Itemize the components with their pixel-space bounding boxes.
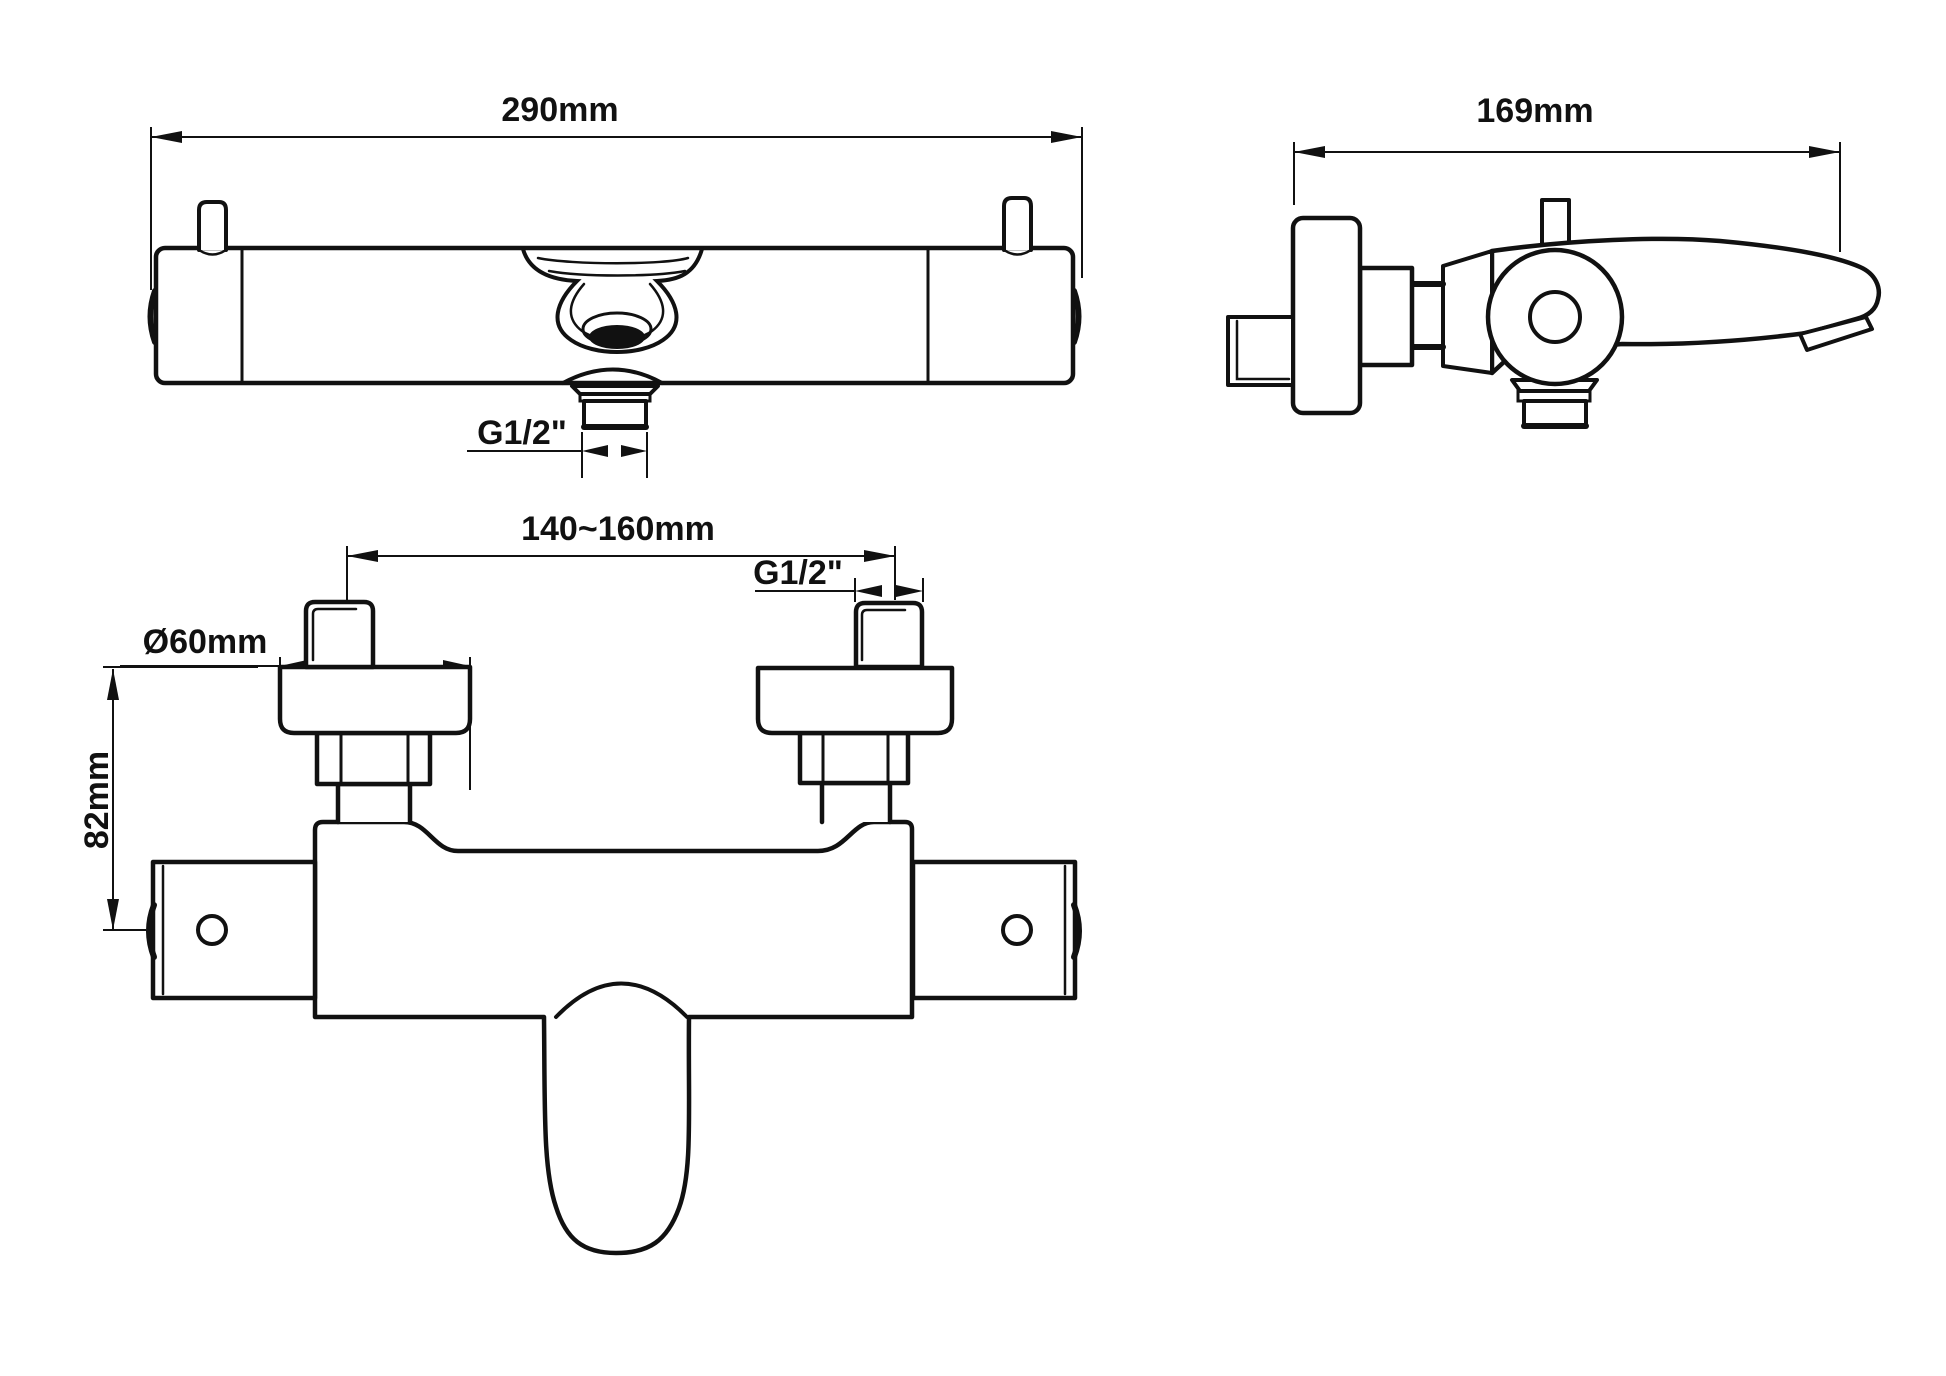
- screw-icon: [1003, 916, 1031, 944]
- dimension-140-160-label: 140~160mm: [521, 510, 715, 548]
- top-view: 290mm: [151, 91, 1083, 478]
- right-wall-union: [758, 603, 952, 822]
- arrowhead-left-icon: [582, 445, 608, 457]
- dimension-82mm-label: 82mm: [78, 751, 116, 849]
- arrowhead-left-icon: [151, 131, 182, 143]
- dimension-inlet-g12: G1/2": [753, 554, 923, 602]
- handle-cap: [913, 862, 1075, 998]
- bottom-outlet: [1512, 380, 1597, 426]
- union-nut: [800, 733, 908, 783]
- left-wall-union: [280, 602, 470, 822]
- arrowhead-right-icon: [1809, 146, 1840, 158]
- union-nut: [317, 733, 430, 784]
- arrowhead-left-icon: [347, 550, 378, 562]
- mixer-body: [315, 822, 912, 1253]
- side-view: 169mm: [1228, 92, 1879, 426]
- dimension-290mm-label: 290mm: [501, 91, 618, 129]
- dial-hub: [1530, 292, 1580, 342]
- thread-knob: [306, 602, 373, 667]
- mixer-bar-body: [156, 248, 1073, 383]
- knob-outline: [1004, 198, 1031, 250]
- arrowhead-right-icon: [621, 445, 647, 457]
- right-handle-knob: [1004, 198, 1031, 255]
- front-view: 140~160mm Ø60mm 82mm G1/2": [78, 510, 1079, 1253]
- spout-hole: [589, 325, 645, 349]
- arrowhead-right-icon: [1051, 131, 1082, 143]
- outlet-thread: [584, 401, 646, 426]
- arrowhead-down-icon: [107, 899, 119, 930]
- dimension-169mm-label: 169mm: [1476, 92, 1593, 130]
- arrowhead-left-icon: [1294, 146, 1325, 158]
- drawing-canvas: 290mm: [0, 0, 1946, 1376]
- dimension-g12-label: G1/2": [753, 554, 843, 592]
- dimension-60mm-label: Ø60mm: [143, 623, 268, 661]
- right-handle: [913, 862, 1079, 998]
- arrowhead-right-icon: [896, 585, 923, 597]
- technical-drawing: 290mm: [0, 0, 1946, 1376]
- outlet-thread: [1524, 401, 1586, 426]
- dimension-g12-label: G1/2": [477, 414, 567, 452]
- screw-icon: [198, 916, 226, 944]
- knob-outline: [199, 202, 226, 250]
- arrowhead-up-icon: [107, 669, 119, 700]
- left-handle: [149, 862, 315, 998]
- union-neck: [822, 783, 890, 822]
- escutcheon: [758, 668, 952, 733]
- spacer-block: [1360, 268, 1412, 365]
- body-cone: [1443, 251, 1492, 373]
- union-neck: [338, 784, 410, 822]
- escutcheon: [280, 667, 470, 733]
- arrowhead-left-icon: [855, 585, 882, 597]
- wall-flange: [1293, 218, 1360, 413]
- arrowhead-right-icon: [864, 550, 895, 562]
- thread-knob: [856, 603, 922, 667]
- handle-cap: [153, 862, 315, 998]
- left-handle-knob: [199, 202, 226, 255]
